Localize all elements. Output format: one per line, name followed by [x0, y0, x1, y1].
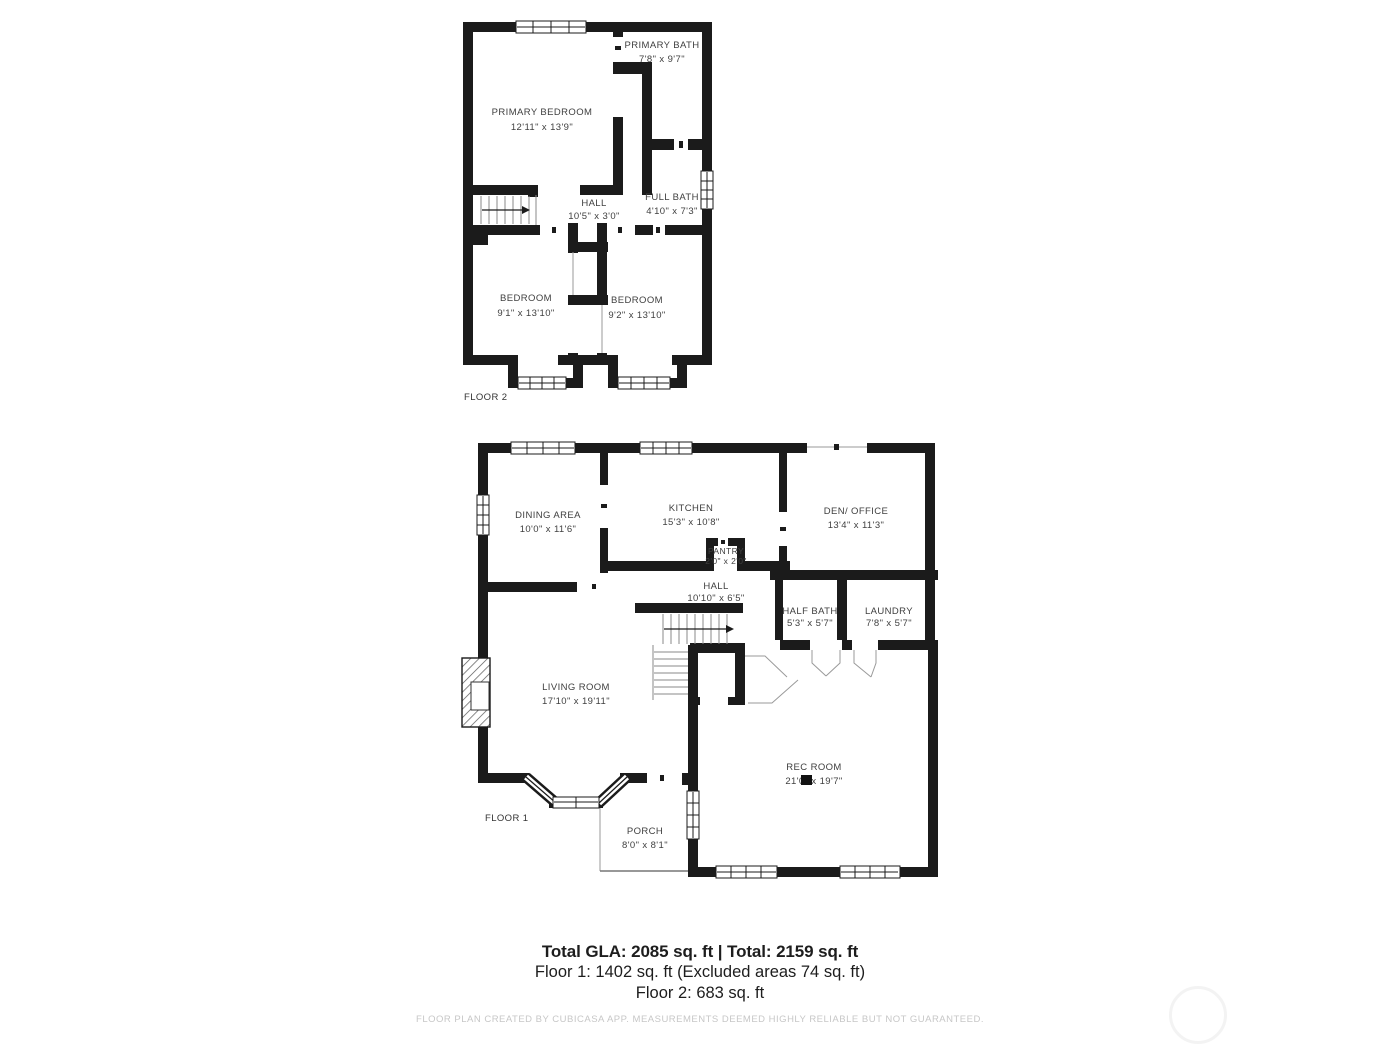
room-label-bedroom-right: BEDROOM	[611, 295, 663, 306]
room-label-den-office: DEN/ OFFICE	[824, 506, 889, 517]
room-dims-den-office: 13'4" x 11'3"	[828, 520, 885, 531]
room-label-pantry: PANTRY	[708, 546, 744, 556]
floor2-stairs	[481, 195, 536, 225]
floor2-plan: PRIMARY BEDROOM 12'11" x 13'9" PRIMARY B…	[463, 21, 713, 403]
room-dims-full-bath: 4'10" x 7'3"	[646, 206, 698, 217]
room-dims-half-bath: 5'3" x 5'7"	[787, 618, 833, 629]
room-label-primary-bedroom: PRIMARY BEDROOM	[492, 107, 593, 118]
room-dims-rec-room: 21'0" x 19'7"	[785, 776, 842, 787]
room-dims-dining-area: 10'0" x 11'6"	[520, 524, 577, 535]
floor2-windows	[516, 21, 713, 389]
room-label-laundry: LAUNDRY	[865, 606, 913, 617]
room-label-porch: PORCH	[627, 826, 663, 837]
floor1-plan: DINING AREA 10'0" x 11'6" KITCHEN 15'3" …	[462, 442, 938, 878]
room-dims-hall-f1: 10'10" x 6'5"	[687, 593, 744, 604]
room-label-bedroom-left: BEDROOM	[500, 293, 552, 304]
room-dims-pantry: 2'0" x 2'0"	[705, 556, 747, 566]
room-dims-kitchen: 15'3" x 10'8"	[662, 517, 719, 528]
room-dims-porch: 8'0" x 8'1"	[622, 840, 668, 851]
floorplan-canvas: PRIMARY BEDROOM 12'11" x 13'9" PRIMARY B…	[0, 0, 1400, 1050]
room-label-full-bath: FULL BATH	[645, 192, 699, 203]
room-dims-living-room: 17'10" x 19'11"	[542, 696, 610, 707]
room-dims-laundry: 7'8" x 5'7"	[866, 618, 912, 629]
room-label-hall-f2: HALL	[581, 198, 606, 209]
glitch-artifact	[801, 775, 812, 785]
total-gla-line: Total GLA: 2085 sq. ft | Total: 2159 sq.…	[0, 941, 1400, 962]
room-label-kitchen: KITCHEN	[669, 503, 714, 514]
room-label-hall-f1: HALL	[703, 581, 728, 592]
room-dims-bedroom-right: 9'2" x 13'10"	[608, 310, 665, 321]
room-dims-bedroom-left: 9'1" x 13'10"	[497, 308, 554, 319]
room-label-living-room: LIVING ROOM	[542, 682, 610, 693]
floor1-area-line: Floor 1: 1402 sq. ft (Excluded areas 74 …	[0, 962, 1400, 983]
cubicasa-watermark-logo	[1169, 986, 1227, 1044]
room-label-half-bath: HALF BATH	[782, 606, 837, 617]
floor1-title: FLOOR 1	[485, 813, 528, 824]
room-label-primary-bath: PRIMARY BATH	[624, 40, 699, 51]
room-dims-primary-bedroom: 12'11" x 13'9"	[511, 122, 573, 133]
floor2-labels: PRIMARY BEDROOM 12'11" x 13'9" PRIMARY B…	[464, 40, 700, 403]
fireplace	[462, 658, 490, 727]
room-dims-hall-f2: 10'5" x 3'0"	[568, 211, 620, 222]
room-label-rec-room: REC ROOM	[786, 762, 841, 773]
floor2-title: FLOOR 2	[464, 392, 507, 403]
room-label-dining-area: DINING AREA	[515, 510, 581, 521]
room-dims-primary-bath: 7'8" x 9'7"	[639, 54, 685, 65]
